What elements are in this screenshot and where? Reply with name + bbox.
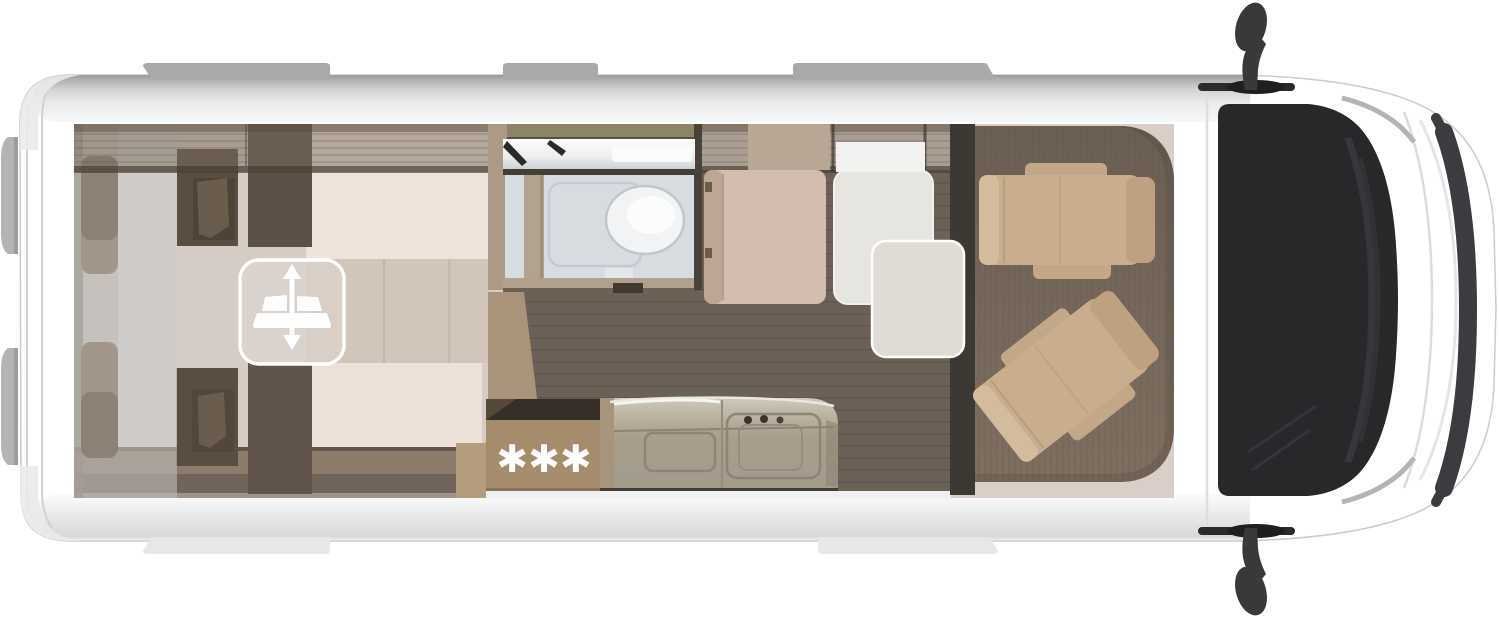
svg-text:✱✱✱: ✱✱✱ [496,439,592,481]
